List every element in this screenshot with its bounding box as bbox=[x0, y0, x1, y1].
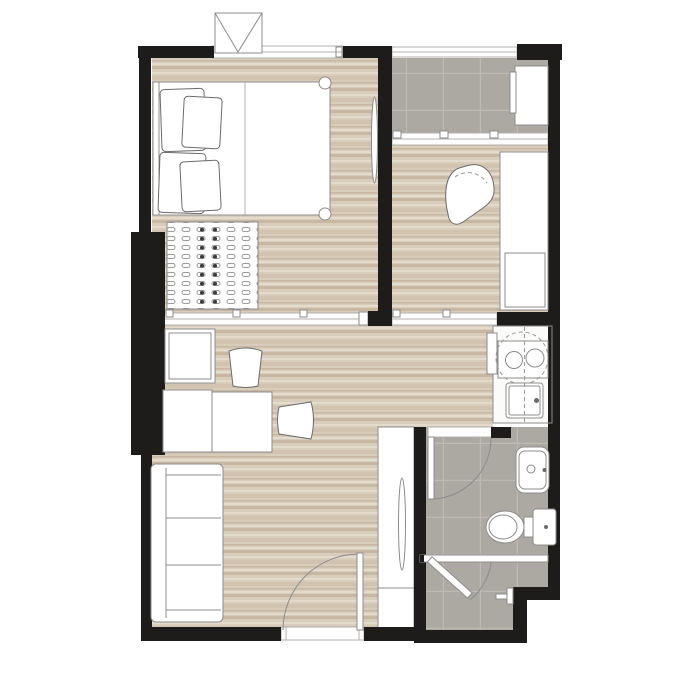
dining-chair-right bbox=[278, 402, 314, 439]
floor-plan-canvas bbox=[0, 0, 686, 676]
wall-bottom-left bbox=[141, 627, 281, 641]
side-cabinet bbox=[163, 390, 212, 452]
wardrobe bbox=[378, 427, 414, 630]
wall-left-upper bbox=[139, 46, 151, 232]
entry-threshold bbox=[281, 627, 364, 640]
desk-counter bbox=[500, 152, 548, 310]
bathroom-basin bbox=[516, 447, 549, 493]
wall-bathroom-left bbox=[414, 427, 426, 630]
wall-kitchen-top bbox=[497, 312, 552, 326]
bathroom-door-threshold bbox=[428, 427, 493, 437]
wall-left-column bbox=[131, 232, 165, 455]
wall-partition-stub bbox=[368, 311, 392, 326]
tv-cabinet bbox=[165, 329, 215, 383]
bed-corner-knob bbox=[319, 77, 331, 89]
bed-corner-knob bbox=[319, 208, 331, 220]
bedside-mat bbox=[167, 222, 258, 309]
counter-edge bbox=[487, 333, 497, 374]
wall-mirror bbox=[372, 97, 378, 183]
kitchen-corridor-floor bbox=[378, 325, 493, 427]
wall-left-lower bbox=[141, 455, 152, 640]
wall-bathroom-bottom bbox=[414, 630, 527, 643]
wall-bathroom-door-stub bbox=[491, 427, 511, 438]
dining-chair-top bbox=[229, 348, 262, 388]
balcony-unit-tab bbox=[510, 72, 516, 113]
ac-condenser-icon bbox=[215, 13, 262, 53]
balcony-window bbox=[392, 47, 517, 57]
sofa bbox=[151, 464, 223, 622]
balcony-sliding-door bbox=[392, 131, 548, 145]
wall-notch-vertical bbox=[513, 594, 527, 643]
double-bed bbox=[153, 77, 331, 220]
dining-table bbox=[212, 392, 272, 452]
wall-bedroom-divider bbox=[378, 46, 392, 325]
wardrobe-handle bbox=[399, 478, 406, 570]
balcony-unit bbox=[515, 66, 548, 125]
balcony-items bbox=[510, 66, 548, 125]
apartment-floor-plan bbox=[0, 0, 686, 676]
